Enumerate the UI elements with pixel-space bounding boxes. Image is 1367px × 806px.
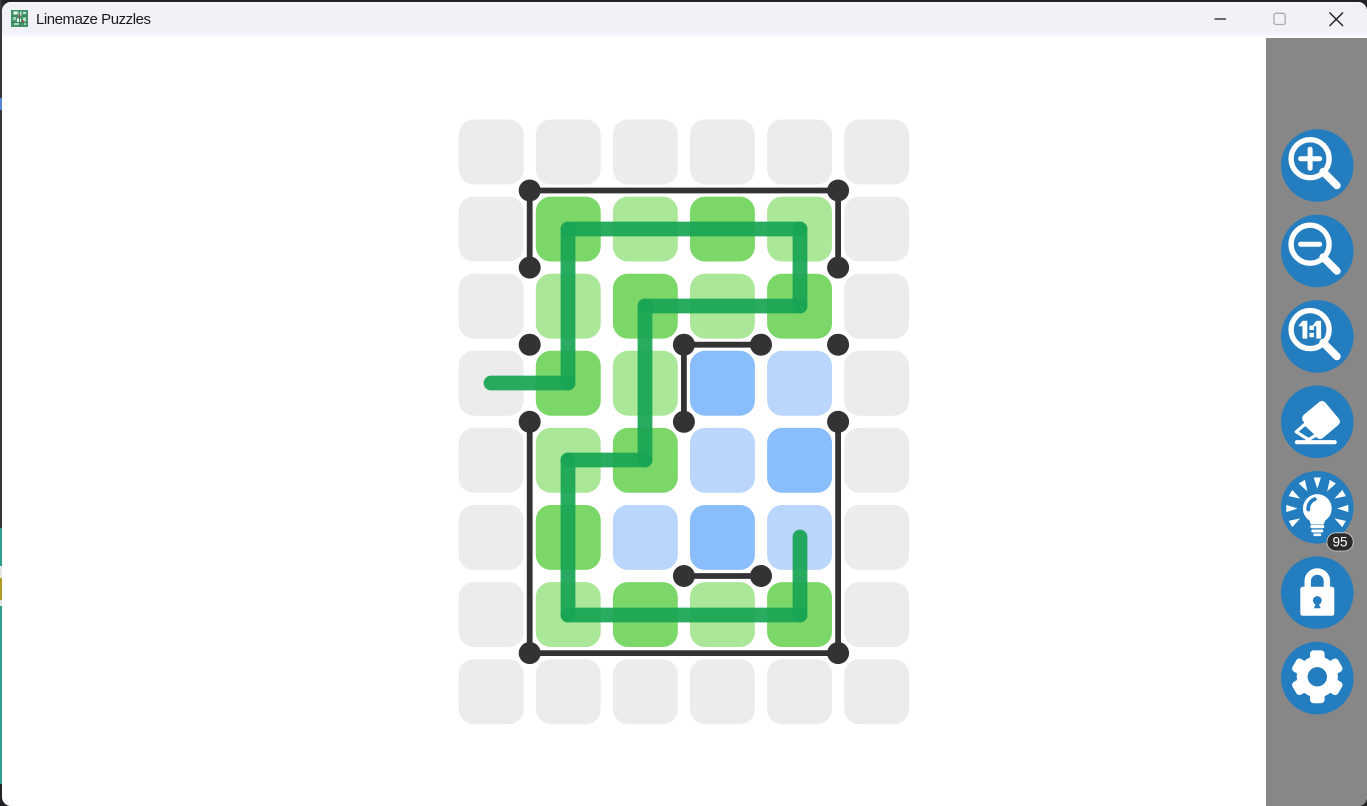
svg-text:95: 95 — [1332, 535, 1347, 550]
